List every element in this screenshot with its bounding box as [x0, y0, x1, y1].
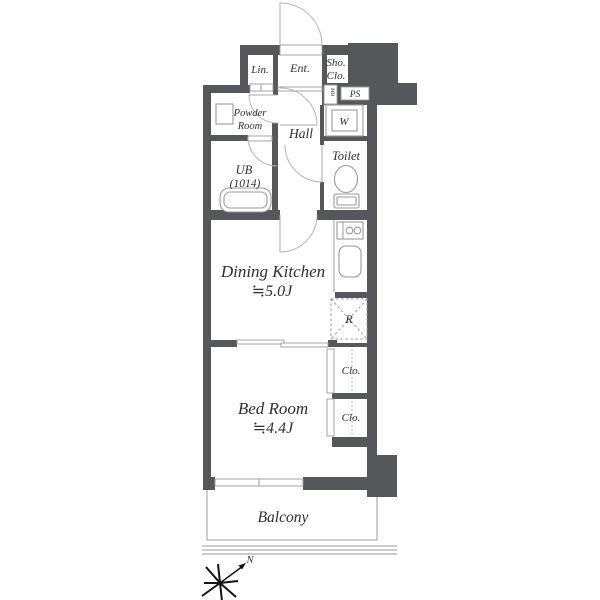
label-closet-upper: Clo. — [342, 365, 361, 377]
ub-door-sill — [248, 136, 272, 141]
stove-burner-1 — [346, 227, 353, 234]
label-balcony: Balcony — [258, 509, 309, 526]
powder-sink — [216, 104, 233, 124]
wall-dk-bed-right — [328, 340, 337, 347]
label-bed-room-2: ≒4.4J — [253, 420, 294, 437]
label-unit-bath-2: (1014) — [230, 178, 261, 190]
sliding-door-panel-2 — [281, 343, 328, 347]
label-shoe-closet-2: Clo. — [327, 70, 346, 82]
wall-dk-bed-left — [203, 340, 237, 347]
wall-counter-end — [335, 292, 367, 298]
toilet-bowl — [335, 166, 358, 193]
sliding-door-panel-1 — [237, 340, 284, 344]
label-fridge: R — [344, 312, 353, 326]
label-dining-kitchen-1: Dining Kitchen — [220, 262, 325, 281]
room-labels: Lin. Ent. Sho. Clo. PS MB W Powder Room … — [220, 57, 361, 526]
label-dining-kitchen-2: ≒5.0J — [252, 283, 293, 300]
stove-burner-2 — [354, 227, 361, 234]
wall-w-toilet-divider — [322, 136, 367, 141]
wall-left-outer — [203, 85, 211, 477]
kitchen-sink — [339, 246, 361, 277]
toilet-tank-inner — [337, 197, 356, 205]
label-toilet: Toilet — [332, 149, 361, 163]
bathtub-inner — [224, 192, 267, 208]
wall-powder-ub-divider — [211, 135, 248, 141]
floor-plan-svg: N Lin. Ent. Sho. Clo. PS MB W Powder Roo… — [0, 0, 600, 600]
compass: N — [202, 555, 255, 600]
wall-closet-top — [337, 343, 367, 347]
compass-spike-sw — [202, 583, 220, 596]
closet-door-lower — [327, 399, 334, 436]
label-shoe-closet-1: Sho. — [326, 57, 345, 69]
hall-door-arc — [280, 88, 317, 125]
label-entrance: Ent. — [289, 61, 310, 75]
label-meter-box: MB — [329, 87, 335, 97]
label-powder-room-2: Room — [237, 121, 263, 132]
label-washer: W — [339, 116, 349, 128]
label-pipe-space: PS — [349, 90, 361, 100]
compass-north-arrow — [220, 566, 243, 583]
entrance-door-arc — [280, 3, 322, 45]
wall-block-top-right — [348, 43, 398, 85]
entry-threshold — [280, 45, 322, 55]
toilet-door-arc — [285, 145, 322, 182]
wall-hall-ub — [272, 123, 278, 215]
closet-door-upper — [327, 349, 334, 393]
wall-toilet-left-lower — [320, 182, 324, 215]
dk-door-arc — [280, 215, 317, 252]
label-unit-bath-1: UB — [236, 163, 253, 177]
compass-spike-se — [220, 583, 236, 597]
wall-lin-left — [240, 45, 248, 85]
wall-lin-ent-divider — [273, 53, 278, 95]
wall-bed-bottom-right — [303, 477, 367, 490]
label-linen: Lin. — [250, 64, 268, 76]
compass-north-label: N — [246, 555, 255, 566]
label-powder-room-1: Powder — [233, 108, 268, 119]
label-closet-lower: Clo. — [342, 412, 361, 424]
label-bed-room-1: Bed Room — [238, 399, 308, 418]
wall-right-outer — [367, 85, 377, 455]
wall-powder-top — [203, 85, 250, 93]
label-hall: Hall — [288, 126, 313, 141]
entrance-step — [278, 87, 322, 91]
wall-toilet-left-upper — [320, 105, 324, 145]
wall-closet-bottom — [332, 437, 367, 447]
wall-bed-bottom-left — [203, 477, 215, 490]
wall-closet-divider — [332, 393, 367, 399]
wall-block-bottom-right — [367, 455, 397, 497]
floor-plan: N Lin. Ent. Sho. Clo. PS MB W Powder Roo… — [0, 0, 600, 600]
